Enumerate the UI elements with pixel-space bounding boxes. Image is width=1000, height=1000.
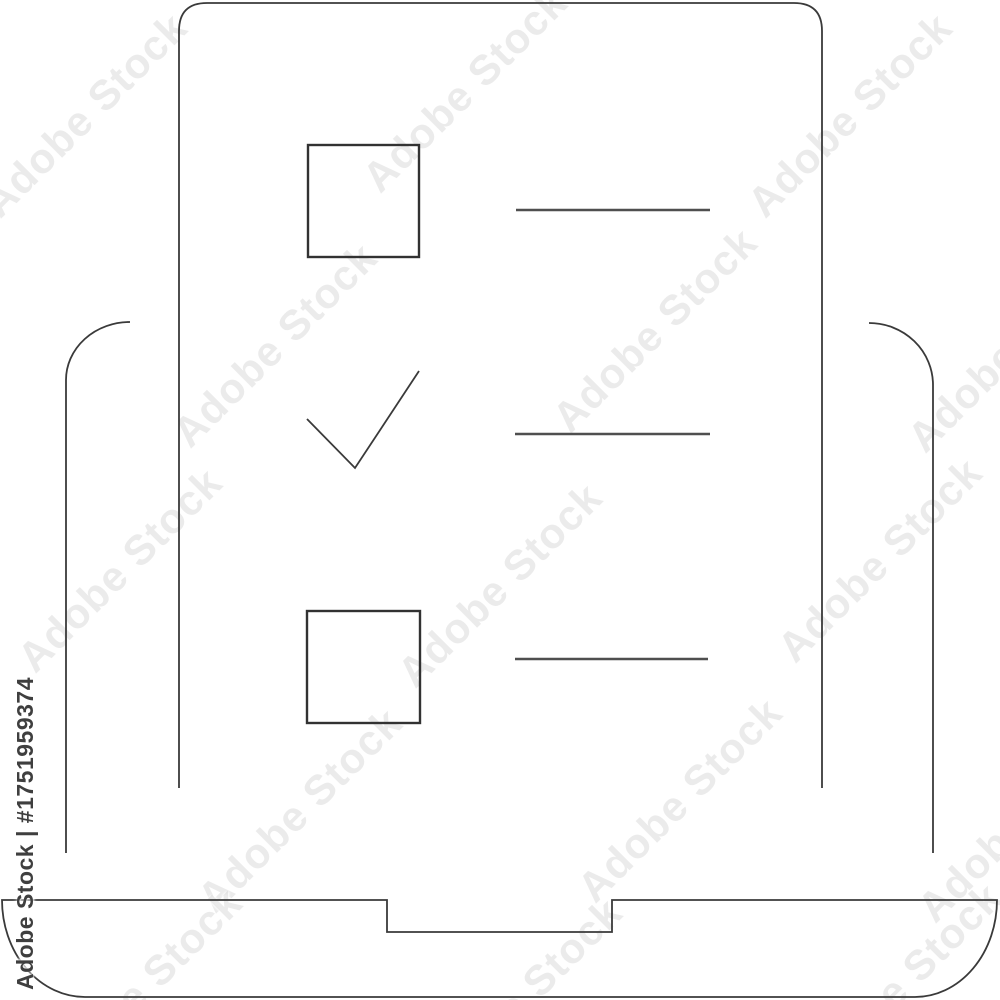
checkmark-icon — [307, 371, 419, 468]
checklist-laptop-icon — [0, 0, 1000, 1000]
laptop-screen-left-edge — [66, 322, 130, 853]
stock-image-canvas: Adobe StockAdobe StockAdobe StockAdobe S… — [0, 0, 1000, 1000]
watermark-attribution-label: Adobe Stock | #1751959374 — [12, 677, 39, 990]
checkbox-bottom-icon — [307, 611, 420, 723]
laptop-base-icon — [2, 900, 997, 997]
checkbox-top-icon — [308, 145, 419, 257]
document-outline-icon — [179, 3, 822, 788]
laptop-screen-right-edge — [869, 323, 933, 853]
